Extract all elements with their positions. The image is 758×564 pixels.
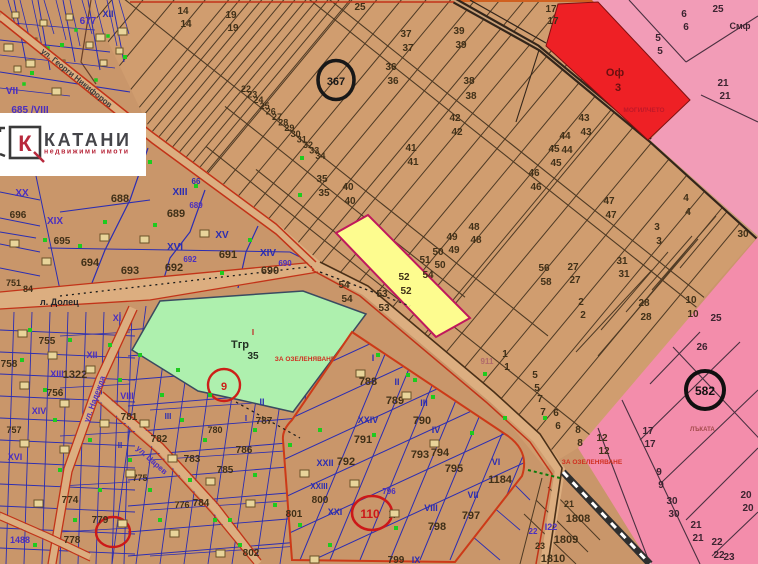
svg-text:43: 43	[580, 127, 592, 138]
svg-text:689: 689	[167, 208, 185, 220]
svg-text:3: 3	[656, 236, 662, 247]
svg-text:792: 792	[337, 456, 355, 468]
svg-text:XIII: XIII	[50, 369, 64, 379]
svg-text:XXIV: XXIV	[358, 415, 379, 425]
svg-text:28: 28	[638, 298, 650, 309]
svg-text:52: 52	[398, 272, 410, 283]
svg-text:4: 4	[685, 207, 691, 218]
svg-text:38: 38	[465, 91, 477, 102]
svg-text:26: 26	[696, 342, 708, 353]
svg-text:Оф: Оф	[606, 67, 625, 79]
svg-text:XI: XI	[113, 313, 122, 323]
svg-text:110: 110	[360, 507, 380, 521]
svg-text:795: 795	[445, 463, 463, 475]
svg-text:53: 53	[376, 289, 388, 300]
svg-text:31: 31	[618, 269, 630, 280]
svg-text:755: 755	[39, 336, 56, 347]
svg-text:776: 776	[174, 500, 189, 510]
svg-text:690: 690	[261, 265, 279, 277]
svg-text:5: 5	[657, 46, 663, 57]
svg-text:XXI: XXI	[328, 507, 343, 517]
svg-text:778: 778	[64, 535, 81, 546]
svg-text:756: 756	[47, 388, 64, 399]
svg-text:35: 35	[318, 188, 330, 199]
svg-text:911: 911	[481, 357, 494, 366]
svg-text:XXII: XXII	[316, 458, 333, 468]
svg-text:10: 10	[685, 295, 697, 306]
svg-text:1322: 1322	[63, 369, 87, 381]
svg-text:758: 758	[1, 359, 18, 370]
svg-text:27: 27	[567, 262, 579, 273]
svg-text:л. Долец: л. Долец	[40, 297, 79, 307]
svg-text:44: 44	[559, 131, 571, 142]
svg-text:798: 798	[428, 521, 446, 533]
svg-text:VI: VI	[492, 457, 501, 467]
svg-text:14: 14	[177, 6, 189, 17]
svg-text:40: 40	[342, 182, 354, 193]
svg-text:25: 25	[354, 2, 366, 13]
svg-text:787: 787	[256, 416, 273, 427]
svg-text:45: 45	[548, 144, 560, 155]
svg-text:21: 21	[719, 91, 731, 102]
svg-text:XIV: XIV	[32, 406, 47, 416]
svg-text:788: 788	[359, 376, 377, 388]
svg-text:6: 6	[553, 408, 559, 419]
svg-text:XIII: XIII	[172, 187, 187, 198]
svg-text:54: 54	[338, 280, 350, 291]
svg-text:I: I	[252, 328, 254, 337]
svg-text:I22: I22	[545, 522, 558, 532]
svg-text:1184: 1184	[488, 474, 513, 486]
svg-text:34: 34	[315, 151, 325, 161]
svg-text:48: 48	[470, 235, 482, 246]
svg-text:780: 780	[207, 425, 222, 435]
svg-text:8: 8	[575, 425, 581, 436]
svg-text:1: 1	[504, 362, 510, 373]
svg-text:789: 789	[386, 395, 404, 407]
svg-text:XII: XII	[102, 9, 113, 19]
svg-text:688: 688	[111, 193, 129, 205]
svg-text:46: 46	[530, 182, 542, 193]
svg-text:II: II	[259, 397, 264, 407]
svg-text:IV: IV	[432, 425, 441, 435]
svg-text:790: 790	[413, 415, 431, 427]
svg-text:Тгр: Тгр	[231, 339, 249, 351]
svg-text:6: 6	[681, 9, 687, 20]
svg-text:ЗА ОЗЕЛЕНЯВАНЕ: ЗА ОЗЕЛЕНЯВАНЕ	[562, 459, 623, 466]
svg-text:20: 20	[740, 490, 752, 501]
svg-text:779: 779	[92, 515, 109, 526]
svg-text:23: 23	[535, 541, 545, 551]
svg-text:47: 47	[605, 210, 617, 221]
svg-text:I: I	[245, 414, 247, 423]
svg-text:689: 689	[189, 201, 203, 210]
svg-text:17: 17	[642, 426, 654, 437]
svg-text:5: 5	[532, 370, 538, 381]
svg-text:37: 37	[402, 43, 414, 54]
svg-text:696: 696	[10, 210, 27, 221]
svg-text:48: 48	[468, 222, 480, 233]
svg-text:695: 695	[54, 236, 71, 247]
svg-text:1809: 1809	[554, 534, 578, 546]
svg-text:3: 3	[654, 222, 660, 233]
svg-text:751: 751	[6, 278, 21, 288]
svg-text:782: 782	[151, 434, 168, 445]
svg-text:582: 582	[695, 384, 715, 398]
svg-text:II: II	[394, 377, 399, 387]
svg-text:10: 10	[687, 309, 699, 320]
svg-text:692: 692	[183, 255, 197, 264]
svg-text:XIX: XIX	[47, 216, 63, 227]
svg-text:784: 784	[193, 498, 210, 509]
svg-text:781: 781	[121, 412, 138, 423]
svg-text:6: 6	[555, 421, 561, 432]
svg-text:12: 12	[598, 446, 610, 457]
svg-text:25: 25	[710, 313, 722, 324]
svg-text:XV: XV	[215, 230, 229, 241]
svg-text:774: 774	[62, 495, 79, 506]
svg-text:20: 20	[742, 503, 754, 514]
svg-text:802: 802	[243, 548, 260, 559]
svg-text:58: 58	[540, 277, 552, 288]
svg-text:22: 22	[529, 527, 538, 536]
svg-text:49: 49	[448, 245, 460, 256]
svg-text:5: 5	[534, 383, 540, 394]
svg-text:17: 17	[545, 4, 557, 15]
svg-text:84: 84	[23, 284, 33, 294]
svg-text:12: 12	[596, 433, 608, 444]
svg-text:690: 690	[278, 259, 292, 268]
svg-text:53: 53	[378, 303, 390, 314]
svg-text:801: 801	[286, 509, 303, 520]
svg-text:XIV: XIV	[260, 248, 276, 259]
svg-text:796: 796	[382, 487, 396, 496]
svg-text:XII: XII	[86, 350, 97, 360]
svg-text:XVI: XVI	[167, 242, 183, 253]
svg-text:2: 2	[578, 297, 584, 308]
svg-text:30: 30	[737, 229, 749, 240]
svg-text:367: 367	[327, 76, 345, 88]
svg-text:41: 41	[405, 143, 417, 154]
svg-text:35: 35	[247, 351, 259, 362]
svg-text:27: 27	[569, 275, 581, 286]
svg-text:ЛЪКАТА: ЛЪКАТА	[690, 427, 715, 433]
svg-text:786: 786	[236, 445, 253, 456]
svg-text:9: 9	[221, 381, 227, 393]
svg-text:47: 47	[603, 196, 615, 207]
svg-text:692: 692	[165, 262, 183, 274]
svg-text:IX: IX	[412, 555, 421, 564]
svg-text:9: 9	[656, 467, 662, 478]
svg-text:46: 46	[528, 168, 540, 179]
svg-text:791: 791	[354, 434, 372, 446]
svg-text:4: 4	[683, 193, 689, 204]
svg-text:17: 17	[547, 16, 559, 27]
svg-text:МОГИЛЧЕТО: МОГИЛЧЕТО	[623, 107, 664, 114]
svg-text:42: 42	[451, 127, 463, 138]
svg-text:19: 19	[227, 23, 239, 34]
svg-text:44: 44	[561, 145, 573, 156]
svg-text:5: 5	[655, 33, 661, 44]
svg-text:28: 28	[640, 312, 652, 323]
svg-text:794: 794	[431, 447, 450, 459]
svg-text:31: 31	[616, 256, 628, 267]
svg-text:III: III	[420, 398, 428, 408]
svg-text:39: 39	[455, 40, 467, 51]
svg-text:37: 37	[400, 29, 412, 40]
svg-text:793: 793	[411, 449, 429, 461]
svg-text:XVI: XVI	[8, 452, 23, 462]
svg-text:50: 50	[432, 247, 444, 258]
svg-text:КАТАНИ: КАТАНИ	[44, 130, 132, 150]
svg-text:52: 52	[400, 286, 412, 297]
svg-text:36: 36	[385, 62, 397, 73]
svg-text:21: 21	[690, 520, 702, 531]
svg-text:2: 2	[580, 310, 586, 321]
svg-text:36: 36	[387, 76, 399, 87]
svg-text:30: 30	[668, 509, 680, 520]
svg-text:693: 693	[121, 265, 139, 277]
svg-text:45: 45	[550, 158, 562, 169]
svg-text:1488: 1488	[10, 535, 30, 545]
svg-text:VII: VII	[467, 490, 478, 500]
svg-text:38: 38	[463, 76, 475, 87]
svg-text:51: 51	[419, 255, 431, 266]
svg-text:677: 677	[80, 16, 97, 27]
svg-text:I: I	[372, 353, 375, 363]
svg-text:691: 691	[219, 249, 237, 261]
svg-text:6: 6	[683, 22, 689, 33]
svg-text:1808: 1808	[566, 513, 590, 525]
svg-text:VIII: VIII	[120, 391, 134, 401]
svg-text:797: 797	[462, 510, 480, 522]
svg-text:50: 50	[434, 260, 446, 271]
svg-text:XX: XX	[15, 188, 29, 199]
svg-text:56: 56	[538, 263, 550, 274]
svg-text:783: 783	[184, 454, 201, 465]
svg-text:II: II	[118, 441, 122, 450]
svg-text:недвижими имоти: недвижими имоти	[44, 149, 130, 156]
svg-text:19: 19	[225, 10, 237, 21]
svg-text:7: 7	[537, 394, 543, 405]
svg-text:1810: 1810	[541, 553, 565, 564]
svg-text:39: 39	[453, 26, 465, 37]
svg-text:757: 757	[6, 425, 21, 435]
svg-text:49: 49	[446, 232, 458, 243]
svg-text:54: 54	[341, 294, 353, 305]
svg-text:40: 40	[344, 196, 356, 207]
svg-text:ЗА ОЗЕЛЕНЯВАНЕ: ЗА ОЗЕЛЕНЯВАНЕ	[275, 356, 336, 363]
svg-text:VII: VII	[6, 86, 18, 97]
svg-text:XXIII: XXIII	[310, 482, 327, 491]
svg-text:9: 9	[658, 480, 664, 491]
svg-text:Смф: Смф	[730, 21, 751, 31]
svg-text:42: 42	[449, 113, 461, 124]
svg-text:30: 30	[666, 496, 678, 507]
svg-text:694: 694	[81, 257, 100, 269]
svg-text:3: 3	[615, 82, 621, 94]
svg-text:21: 21	[692, 533, 704, 544]
svg-text:8: 8	[577, 438, 583, 449]
svg-text:35: 35	[316, 174, 328, 185]
svg-text:25: 25	[712, 4, 724, 15]
svg-text:41: 41	[407, 157, 419, 168]
svg-text:23: 23	[723, 552, 735, 563]
svg-text:К: К	[18, 131, 32, 156]
svg-text:43: 43	[578, 113, 590, 124]
svg-text:1: 1	[502, 349, 508, 360]
svg-text:21: 21	[564, 499, 574, 509]
svg-text:VIII: VIII	[424, 503, 438, 513]
svg-text:799: 799	[388, 555, 405, 564]
svg-text:21: 21	[717, 78, 729, 89]
svg-text:785: 785	[217, 465, 234, 476]
svg-text:14: 14	[180, 19, 192, 30]
svg-text:800: 800	[312, 495, 329, 506]
svg-text:22: 22	[711, 537, 723, 548]
svg-text:III: III	[165, 412, 172, 421]
svg-text:54: 54	[422, 270, 434, 281]
svg-text:17: 17	[644, 439, 656, 450]
